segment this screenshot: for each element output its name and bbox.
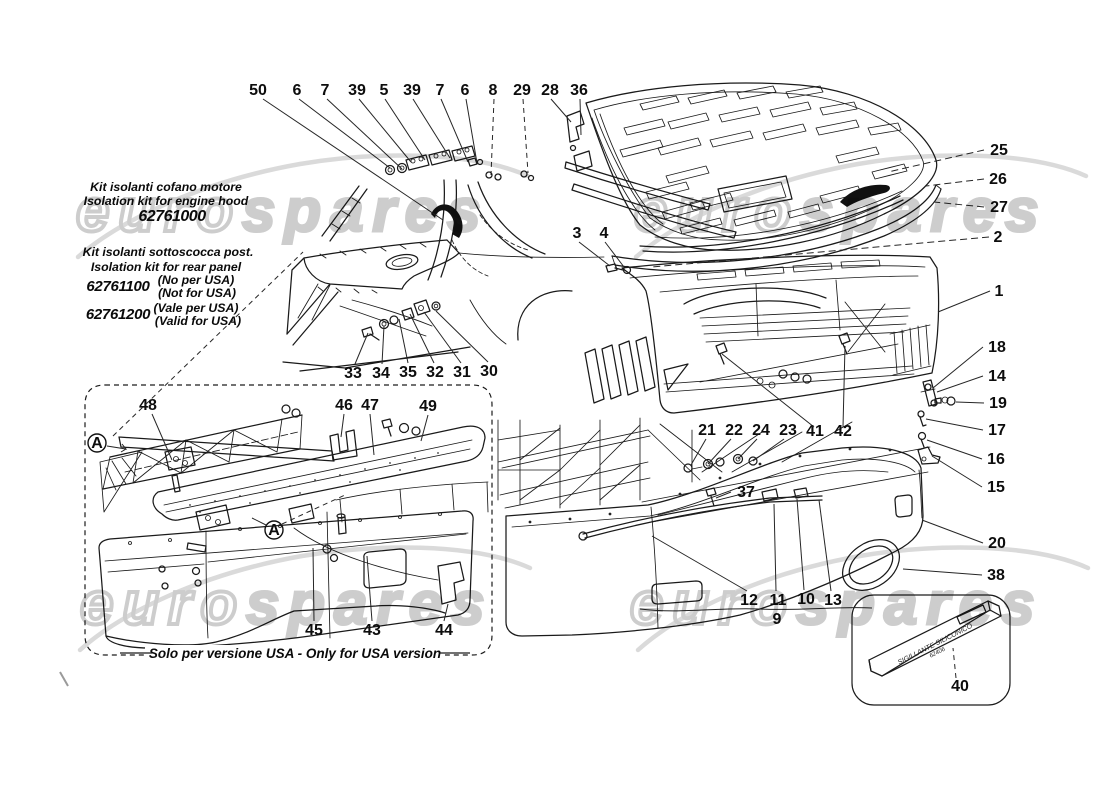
svg-text:15: 15: [987, 479, 1005, 496]
svg-text:47: 47: [361, 397, 379, 414]
svg-text:39: 39: [403, 82, 421, 99]
svg-text:eurospares: eurospares: [80, 570, 494, 637]
svg-text:eurospares: eurospares: [76, 177, 490, 244]
svg-text:21: 21: [698, 422, 716, 439]
svg-text:23: 23: [779, 422, 797, 439]
svg-text:(Valid for USA): (Valid for USA): [155, 314, 241, 328]
svg-text:(Not for USA): (Not for USA): [158, 286, 236, 300]
svg-text:49: 49: [419, 398, 437, 415]
svg-text:Isolation kit for rear panel: Isolation kit for rear panel: [91, 260, 242, 274]
svg-text:40: 40: [951, 678, 969, 695]
svg-text:32: 32: [426, 364, 444, 381]
svg-text:5: 5: [380, 82, 389, 99]
svg-text:A: A: [268, 522, 280, 539]
svg-text:48: 48: [139, 397, 157, 414]
svg-text:7: 7: [436, 82, 445, 99]
svg-text:39: 39: [348, 82, 366, 99]
svg-text:35: 35: [399, 364, 417, 381]
svg-text:22: 22: [725, 422, 743, 439]
svg-text:37: 37: [737, 484, 755, 501]
svg-text:31: 31: [453, 364, 471, 381]
svg-text:30: 30: [480, 363, 498, 380]
svg-text:36: 36: [570, 82, 588, 99]
svg-text:Solo per versione USA - Only f: Solo per versione USA - Only for USA ver…: [149, 646, 441, 661]
svg-text:Kit isolanti sottoscocca post.: Kit isolanti sottoscocca post.: [83, 245, 254, 259]
svg-text:14: 14: [988, 368, 1006, 385]
svg-text:(No per USA): (No per USA): [158, 273, 235, 287]
svg-text:41: 41: [806, 423, 824, 440]
svg-text:33: 33: [344, 365, 362, 382]
svg-text:6: 6: [293, 82, 302, 99]
svg-text:6: 6: [461, 82, 470, 99]
svg-text:28: 28: [541, 82, 559, 99]
svg-text:18: 18: [988, 339, 1006, 356]
svg-text:A: A: [91, 435, 103, 452]
svg-text:3: 3: [573, 225, 582, 242]
svg-text:7: 7: [321, 82, 330, 99]
svg-text:19: 19: [989, 395, 1007, 412]
svg-text:eurospares: eurospares: [634, 177, 1048, 244]
svg-text:24: 24: [752, 422, 770, 439]
svg-text:50: 50: [249, 82, 267, 99]
svg-text:34: 34: [372, 365, 390, 382]
svg-text:16: 16: [987, 451, 1005, 468]
svg-text:eurospares: eurospares: [630, 570, 1044, 637]
svg-text:29: 29: [513, 82, 531, 99]
svg-text:62761100: 62761100: [86, 278, 150, 295]
svg-text:17: 17: [988, 422, 1006, 439]
svg-text:8: 8: [489, 82, 498, 99]
svg-text:4: 4: [600, 225, 609, 242]
svg-text:(Vale per USA): (Vale per USA): [154, 301, 239, 315]
svg-text:46: 46: [335, 397, 353, 414]
svg-text:62761200: 62761200: [86, 306, 151, 323]
svg-text:1: 1: [995, 283, 1004, 300]
